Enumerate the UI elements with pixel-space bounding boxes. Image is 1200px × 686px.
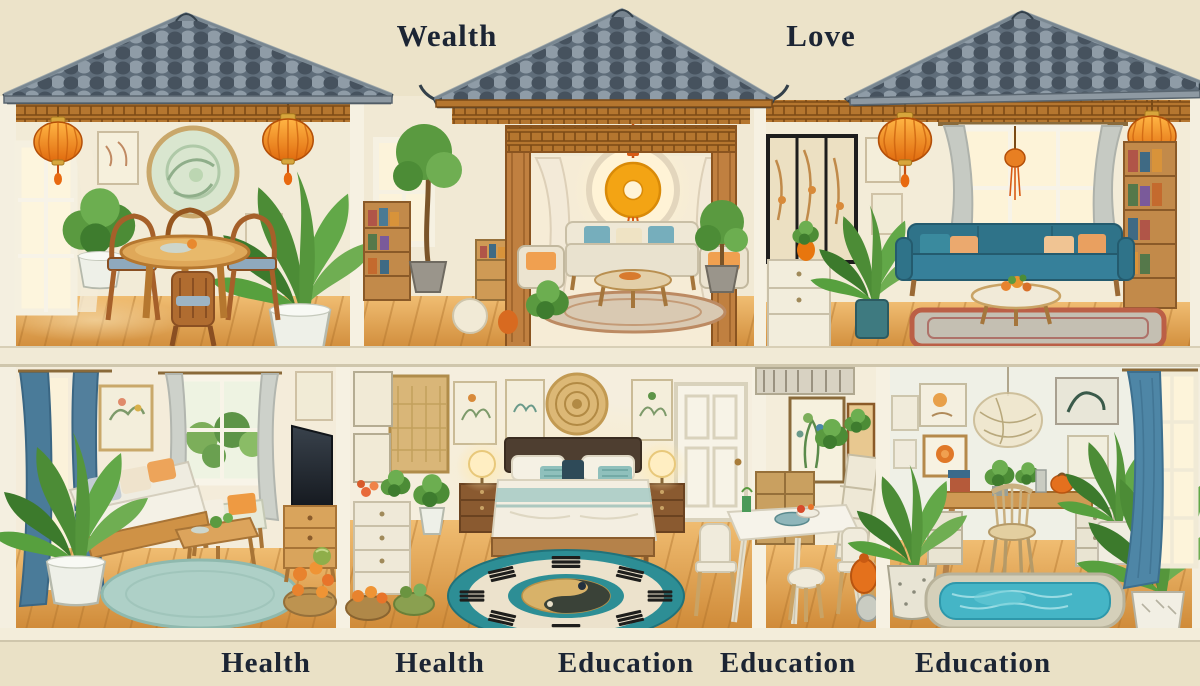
orange-pot [498,310,518,334]
armchair [518,246,564,288]
divider-upper-1 [350,96,364,352]
tv-screen [292,426,332,510]
small-frame [296,372,332,420]
small-frame [98,132,138,184]
lower-floor [0,367,1200,642]
bottom-sill [0,628,1200,642]
carved-frieze [766,100,1190,122]
label-education-3: Education [915,647,1051,679]
table-vase [742,496,751,512]
persian-rug [912,310,1164,346]
label-education-2: Education [720,647,856,679]
bedroom-door [676,384,746,520]
label-wealth: Wealth [397,18,498,53]
wall-art-frame [100,386,152,450]
label-education-1: Education [558,647,694,679]
room-study-lower-right [848,367,1200,639]
pool-rug [926,574,1124,628]
outer-wall-right-upper [1190,96,1200,352]
divider-upper-2 [754,96,766,352]
bookshelf [364,202,410,300]
label-health-1: Health [221,647,311,679]
sphere-lamp [453,299,487,333]
roofs [4,10,1200,107]
label-health-2: Health [395,647,485,679]
room-living-upper-right [766,100,1190,352]
top-shelf-clutter [756,368,854,394]
room-living-lower-left [0,367,336,630]
label-love: Love [786,18,855,53]
upper-floor [0,96,1200,355]
room-dining-upper-left [5,100,377,355]
room-bedroom-lower-middle [346,367,752,642]
door-knob [735,459,742,466]
pavilion-lintel [506,126,736,152]
floor-band [0,346,1200,367]
round-wall-art [149,128,237,216]
room-pavilion-upper-middle [364,96,754,352]
bookshelf-tall [1124,142,1176,308]
illustration-canvas: Wealth Love Health Health Education Educ… [0,0,1200,686]
divider-lower-1 [336,367,350,630]
dresser [354,470,410,594]
scene-svg: Wealth Love Health Health Education Educ… [0,0,1200,686]
